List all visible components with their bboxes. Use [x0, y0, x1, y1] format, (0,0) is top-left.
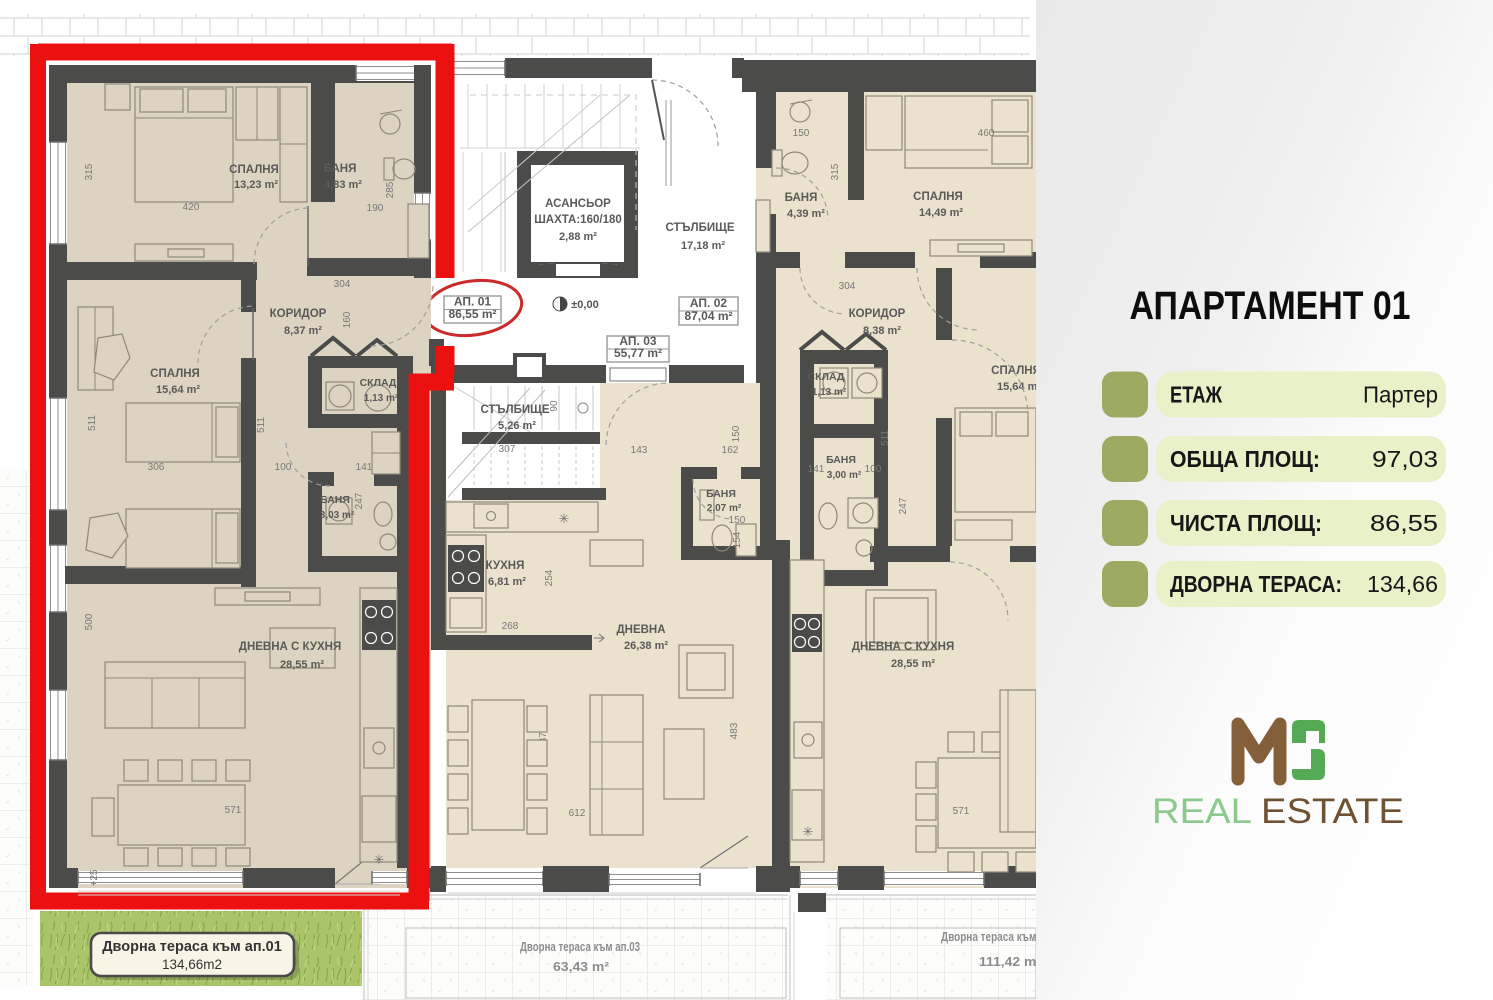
svg-text:БАНЯ: БАНЯ [320, 494, 350, 506]
svg-text:511: 511 [880, 430, 891, 446]
svg-text:150: 150 [729, 515, 746, 526]
svg-text:13,23 m²: 13,23 m² [234, 179, 278, 191]
svg-text:2,07 m²: 2,07 m² [707, 503, 742, 514]
svg-text:СКЛАД: СКЛАД [360, 377, 397, 389]
svg-text:160: 160 [342, 311, 353, 328]
svg-text:154: 154 [732, 531, 743, 548]
svg-text:134,66: 134,66 [1367, 571, 1438, 597]
svg-text:Дворна тераса към ап.03: Дворна тераса към ап.03 [520, 940, 640, 954]
svg-text:111,42 m²: 111,42 m² [979, 955, 1041, 969]
svg-text:86,55: 86,55 [1370, 510, 1438, 536]
svg-text:✳: ✳ [803, 824, 814, 839]
svg-text:АП. 02: АП. 02 [690, 296, 727, 310]
svg-text:ДНЕВНА: ДНЕВНА [616, 624, 665, 636]
svg-text:СПАЛНЯ: СПАЛНЯ [913, 191, 963, 203]
svg-text:СТЪЛБИЩЕ: СТЪЛБИЩЕ [480, 404, 549, 416]
svg-text:100: 100 [865, 464, 882, 475]
svg-text:307: 307 [499, 444, 516, 455]
svg-text:СТЪЛБИЩЕ: СТЪЛБИЩЕ [665, 222, 734, 234]
svg-text:28,55 m²: 28,55 m² [891, 658, 935, 670]
svg-text:254: 254 [544, 569, 555, 586]
svg-text:6,81 m²: 6,81 m² [488, 576, 526, 588]
svg-text:247: 247 [354, 492, 365, 509]
svg-text:БАНЯ: БАНЯ [785, 192, 818, 204]
svg-text:17,18 m²: 17,18 m² [681, 240, 725, 252]
svg-text:СКЛАД: СКЛАД [808, 371, 845, 383]
svg-text:АСАНСЬОР: АСАНСЬОР [545, 198, 611, 210]
svg-text:63,43 m²: 63,43 m² [553, 960, 609, 974]
svg-text:14,49 m²: 14,49 m² [919, 207, 963, 219]
svg-text:5,26 m²: 5,26 m² [498, 420, 536, 432]
svg-text:КОРИДОР: КОРИДОР [270, 308, 327, 320]
svg-text:134,66m2: 134,66m2 [162, 957, 222, 972]
svg-text:26,38 m²: 26,38 m² [624, 640, 668, 652]
svg-text:460: 460 [978, 128, 995, 139]
svg-text:– →: – → [603, 258, 620, 268]
svg-text:190: 190 [367, 203, 384, 214]
svg-text:571: 571 [953, 806, 970, 817]
svg-text:СПАЛНЯ: СПАЛНЯ [229, 164, 279, 176]
svg-text:162: 162 [722, 445, 739, 456]
svg-text:4,83 m²: 4,83 m² [324, 179, 362, 191]
svg-text:55,77 m²: 55,77 m² [614, 346, 662, 360]
svg-text:97,03: 97,03 [1372, 446, 1438, 472]
svg-text:ЕТАЖ: ЕТАЖ [1170, 382, 1222, 408]
svg-text:2,88 m²: 2,88 m² [559, 231, 597, 243]
svg-text:315: 315 [84, 163, 95, 180]
svg-text:304: 304 [839, 281, 856, 292]
svg-text:АПАРТАМЕНТ 01: АПАРТАМЕНТ 01 [1130, 284, 1411, 328]
svg-text:511: 511 [87, 415, 98, 431]
svg-text:✳: ✳ [559, 511, 570, 526]
svg-text:ДНЕВНА С КУХНЯ: ДНЕВНА С КУХНЯ [239, 641, 341, 653]
svg-text:БАНЯ: БАНЯ [826, 454, 856, 466]
svg-text:571: 571 [225, 805, 242, 816]
svg-text:ДВОРНА ТЕРАСА:: ДВОРНА ТЕРАСА: [1170, 571, 1342, 597]
svg-text:ЧИСТА ПЛОЩ:: ЧИСТА ПЛОЩ: [1170, 510, 1322, 536]
svg-text:86,55 m²: 86,55 m² [448, 307, 496, 321]
svg-text:БАНЯ: БАНЯ [706, 488, 736, 500]
svg-text:141: 141 [808, 464, 825, 475]
svg-text:8,38 m²: 8,38 m² [863, 325, 901, 337]
svg-text:КУХНЯ: КУХНЯ [486, 560, 525, 572]
svg-text:420: 420 [183, 202, 200, 213]
svg-text:БАНЯ: БАНЯ [324, 163, 357, 175]
svg-text:3,00 m²: 3,00 m² [827, 470, 862, 481]
svg-text:← –: ← – [537, 258, 554, 268]
svg-text:500: 500 [84, 613, 95, 630]
svg-text:1,13 m²: 1,13 m² [812, 387, 847, 398]
svg-text:ДНЕВНА С КУХНЯ: ДНЕВНА С КУХНЯ [852, 641, 954, 653]
svg-text:±0,00: ±0,00 [571, 299, 598, 311]
svg-text:268: 268 [502, 621, 519, 632]
svg-text:100: 100 [275, 462, 292, 473]
svg-text:КОРИДОР: КОРИДОР [849, 308, 906, 320]
svg-text:143: 143 [631, 445, 648, 456]
svg-text:612: 612 [569, 808, 586, 819]
svg-text:1,13 m²: 1,13 m² [364, 393, 399, 404]
svg-text:315: 315 [830, 163, 841, 180]
svg-text:Партер: Партер [1363, 382, 1438, 408]
svg-text:150: 150 [793, 128, 810, 139]
svg-text:СПАЛНЯ: СПАЛНЯ [150, 368, 200, 380]
svg-text:483: 483 [729, 722, 740, 739]
svg-text:141: 141 [356, 462, 373, 473]
svg-text:304: 304 [334, 279, 351, 290]
svg-text:87,04 m²: 87,04 m² [684, 309, 732, 323]
svg-text:247: 247 [898, 497, 909, 514]
svg-text:15,64 m²: 15,64 m² [997, 381, 1041, 393]
svg-text:✳: ✳ [374, 852, 385, 867]
svg-text:ШАХТА:160/180: ШАХТА:160/180 [534, 214, 622, 226]
svg-text:150: 150 [731, 425, 742, 442]
svg-text:15,64 m²: 15,64 m² [156, 384, 200, 396]
svg-text:+25: +25 [89, 869, 100, 886]
svg-text:90: 90 [549, 400, 560, 412]
svg-text:REAL ESTATE: REAL ESTATE [1152, 792, 1404, 831]
svg-text:8,37 m²: 8,37 m² [284, 325, 322, 337]
svg-text:3,03 m²: 3,03 m² [320, 510, 355, 521]
svg-text:28,55 m²: 28,55 m² [280, 659, 324, 671]
svg-text:4,39 m²: 4,39 m² [787, 208, 825, 220]
svg-text:ОБЩА ПЛОЩ:: ОБЩА ПЛОЩ: [1170, 446, 1320, 472]
svg-text:Дворна тераса към ап.01: Дворна тераса към ап.01 [102, 939, 282, 955]
svg-text:511: 511 [256, 417, 267, 433]
svg-text:285: 285 [385, 181, 396, 198]
svg-text:306: 306 [148, 462, 165, 473]
